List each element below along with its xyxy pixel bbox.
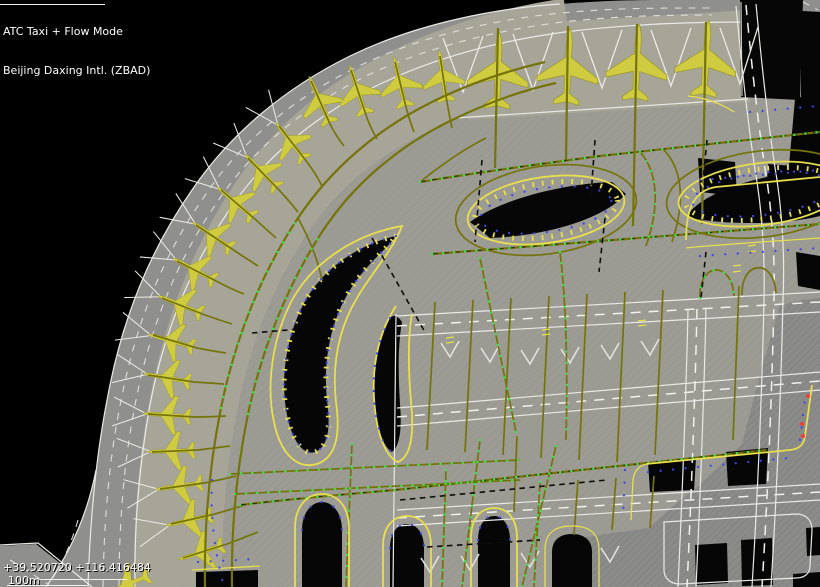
hud-divider: [0, 4, 105, 5]
hud-top: ATC Taxi + Flow Mode Beijing Daxing Intl…: [3, 0, 150, 90]
coordinates-underline: [33, 579, 127, 580]
atc-app-window: ATC Taxi + Flow Mode Beijing Daxing Intl…: [0, 0, 820, 587]
mode-label: ATC Taxi + Flow Mode: [3, 25, 150, 38]
scale-bar: [7, 585, 87, 586]
coordinates-readout: +39.520720 +116.416484: [3, 561, 151, 574]
airport-label: Beijing Daxing Intl. (ZBAD): [3, 64, 150, 77]
terminal-building: [740, 0, 803, 100]
